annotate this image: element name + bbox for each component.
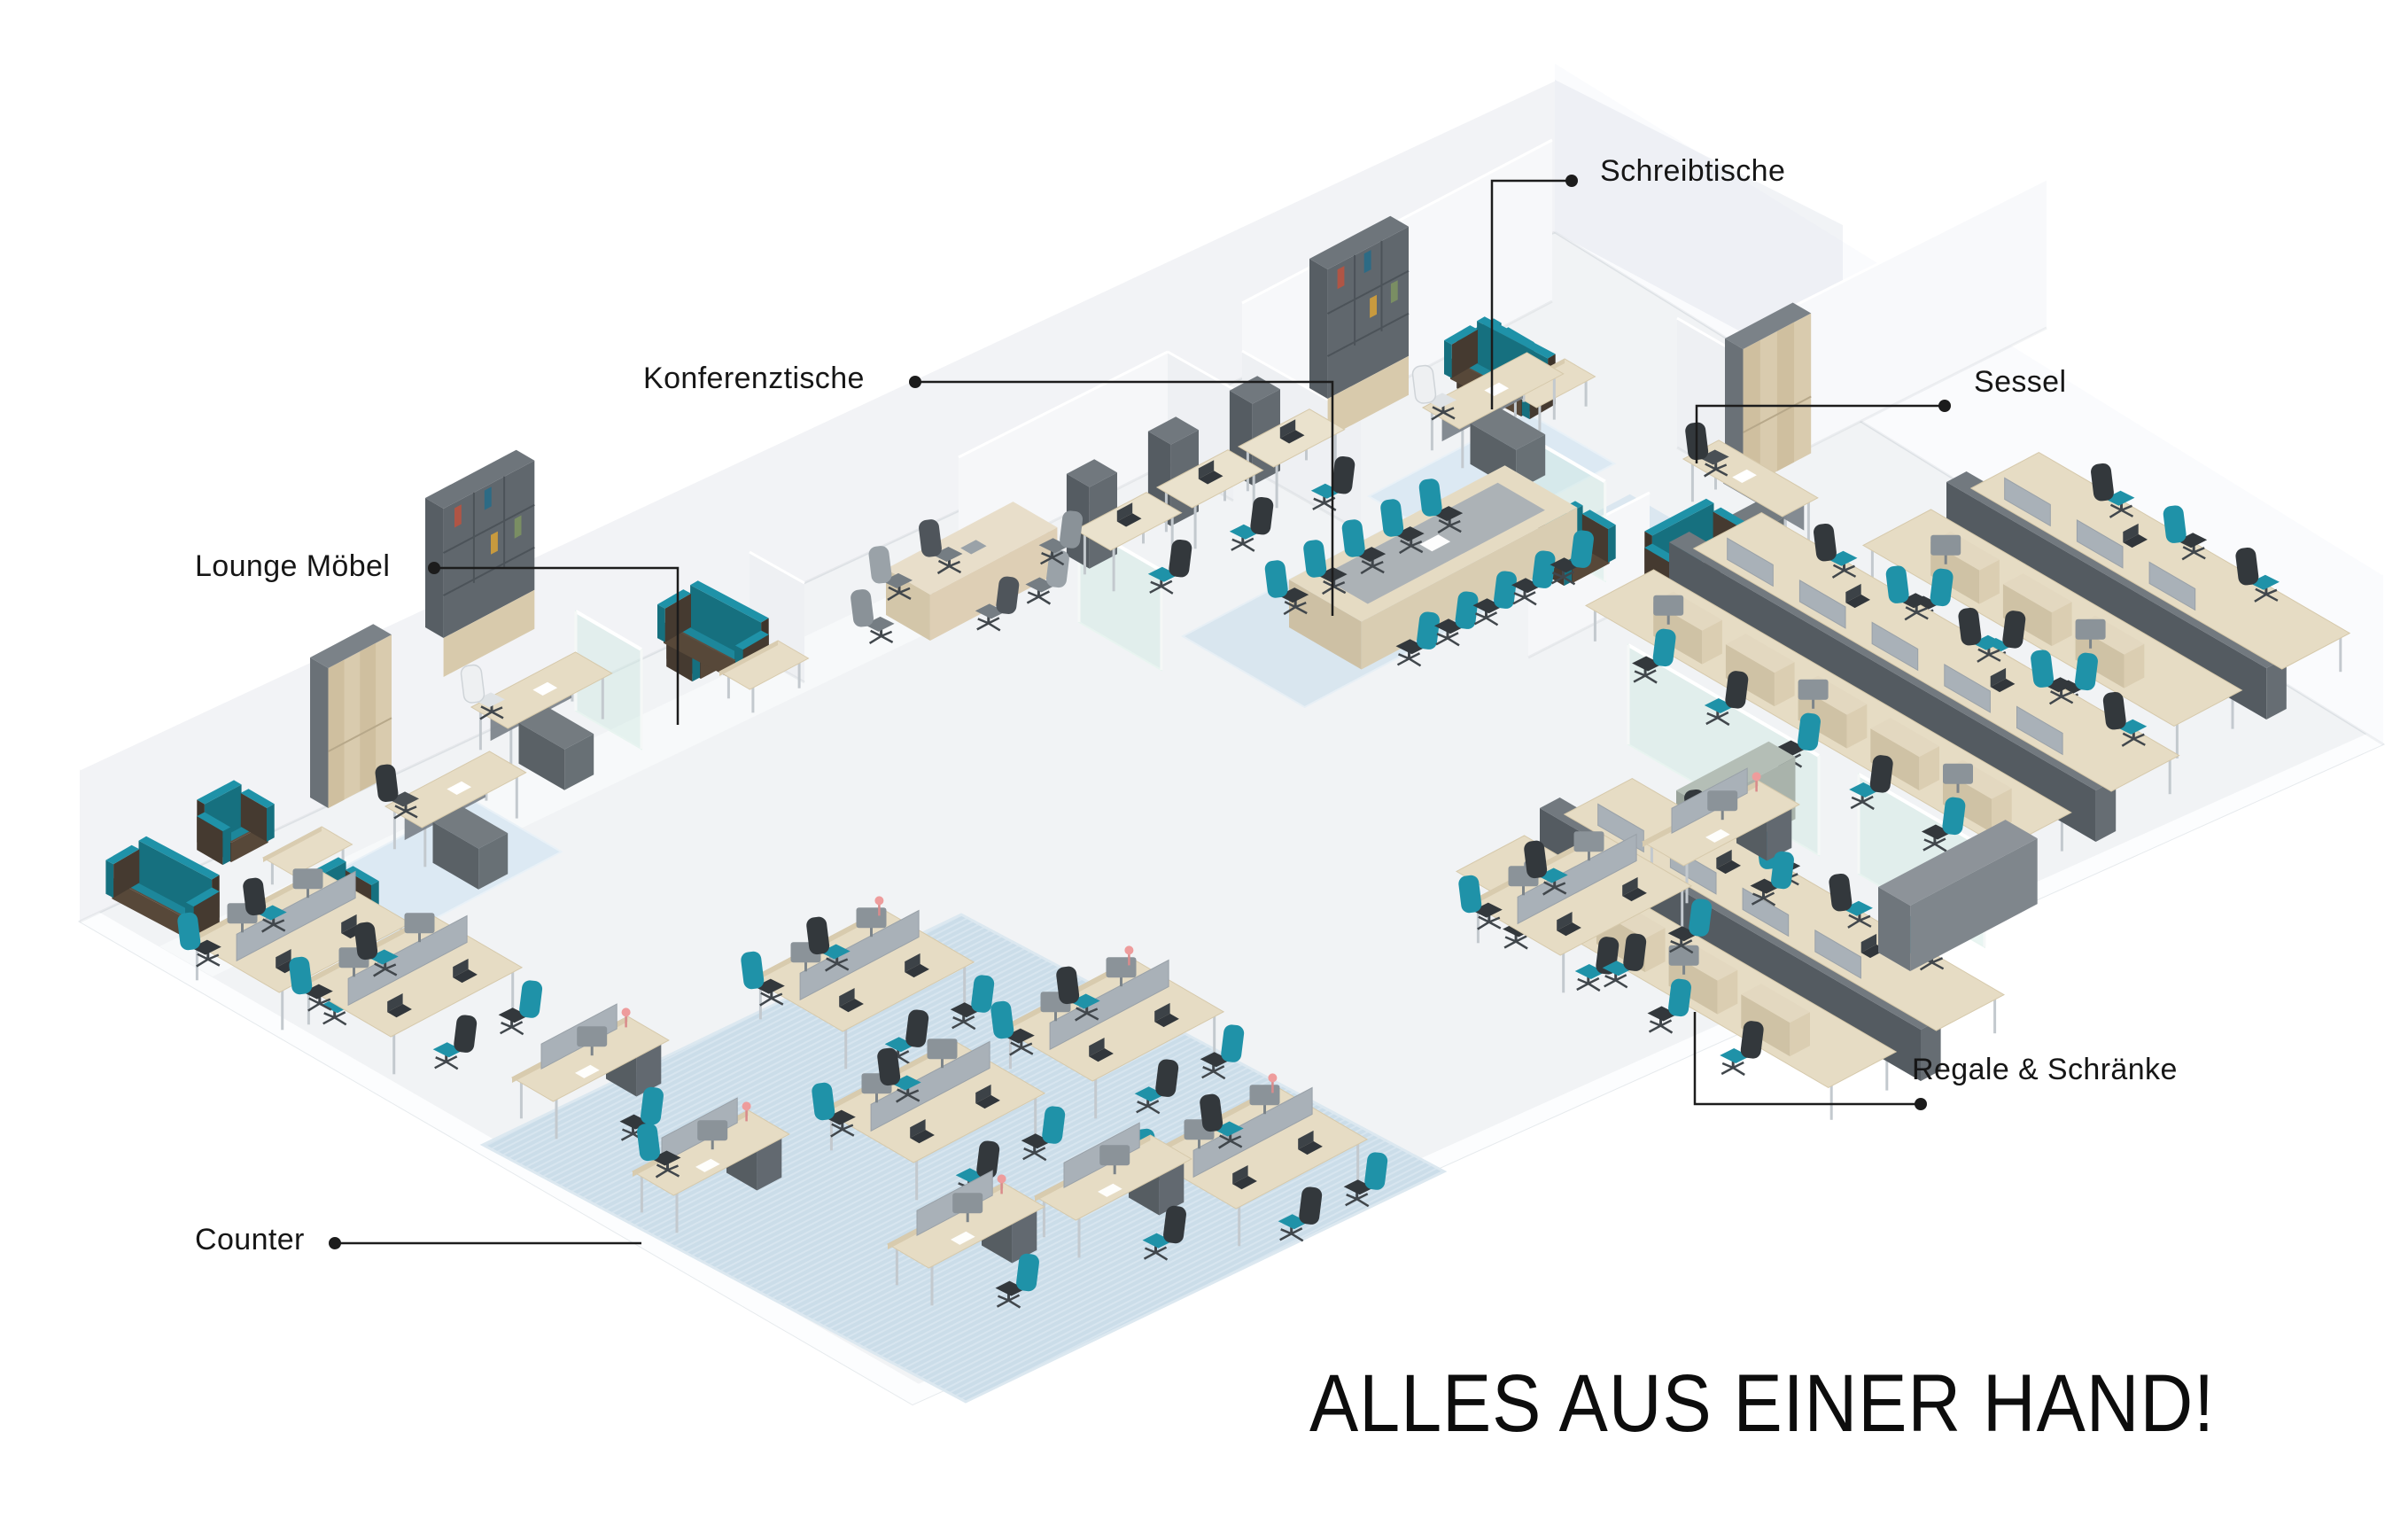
leader-counter [329,1237,641,1249]
page: Schreibtische Konferenztische Sessel Lou… [0,0,2408,1517]
label-lounge-moebel: Lounge Möbel [195,549,390,584]
label-regale-schraenke: Regale & Schränke [1912,1053,2178,1087]
office-floorplan-illustration [0,0,2408,1517]
label-sessel: Sessel [1974,365,2066,400]
label-konferenztische: Konferenztische [643,362,865,396]
label-counter: Counter [195,1223,305,1257]
slogan-text: ALLES AUS EINER HAND! [1309,1358,2215,1451]
label-schreibtische: Schreibtische [1600,154,1785,189]
